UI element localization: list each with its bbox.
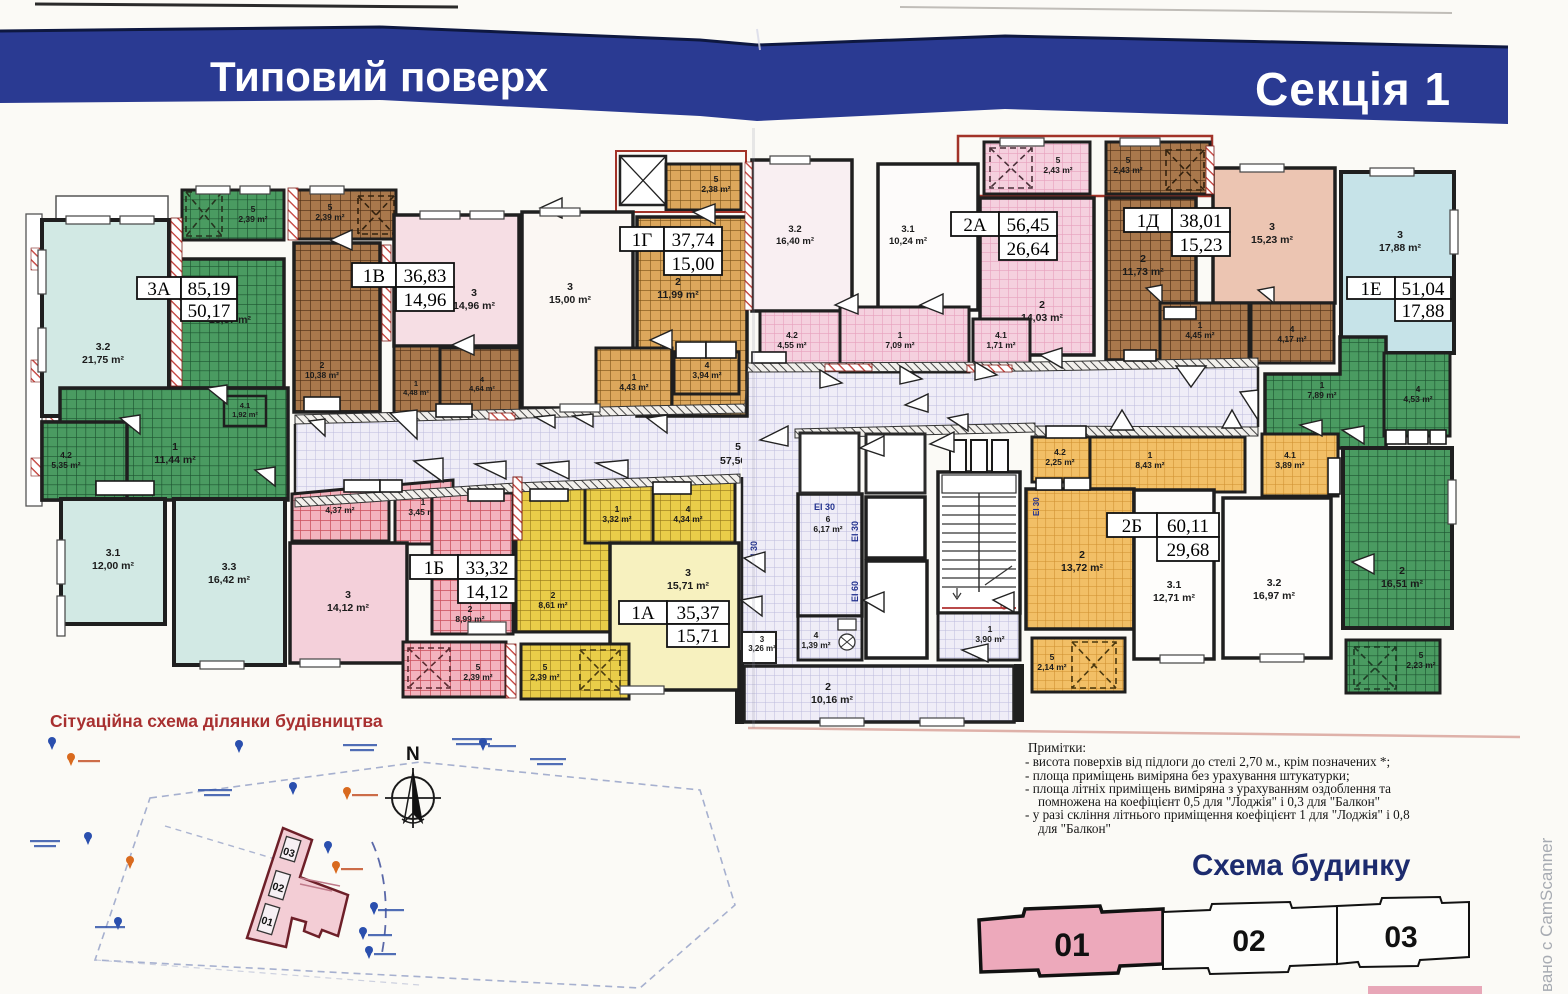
svg-text:14,96: 14,96 bbox=[404, 290, 447, 311]
svg-text:3А: 3А bbox=[147, 279, 171, 300]
svg-text:вано с CamScanner: вано с CamScanner bbox=[1537, 837, 1556, 992]
svg-text:1А: 1А bbox=[631, 603, 655, 624]
svg-text:15,71: 15,71 bbox=[677, 626, 720, 647]
svg-text:36,83: 36,83 bbox=[404, 266, 447, 287]
svg-text:15,23: 15,23 bbox=[1180, 235, 1223, 256]
svg-text:26,64: 26,64 bbox=[1007, 239, 1050, 260]
svg-text:2Б: 2Б bbox=[1122, 516, 1142, 537]
svg-text:для "Балкон": для "Балкон" bbox=[1038, 821, 1111, 836]
svg-text:01: 01 bbox=[1054, 927, 1090, 963]
svg-text:51,04: 51,04 bbox=[1402, 279, 1445, 300]
svg-text:EI 30: EI 30 bbox=[814, 502, 835, 512]
svg-text:85,19: 85,19 bbox=[188, 279, 231, 300]
svg-text:Типовий поверх: Типовий поверх bbox=[210, 53, 549, 100]
svg-text:- у разі скління літнього прим: - у разі скління літнього приміщення кое… bbox=[1025, 807, 1410, 822]
svg-text:Секція 1: Секція 1 bbox=[1255, 63, 1451, 115]
svg-text:EI 30: EI 30 bbox=[850, 521, 860, 542]
svg-text:56,45: 56,45 bbox=[1007, 215, 1050, 236]
svg-text:15,00: 15,00 bbox=[672, 254, 715, 275]
svg-text:14,12: 14,12 bbox=[466, 582, 509, 603]
svg-text:- висота поверхів від підлоги: - висота поверхів від підлоги до стелі 2… bbox=[1025, 754, 1390, 769]
svg-text:38,01: 38,01 bbox=[1180, 211, 1223, 232]
svg-text:33,32: 33,32 bbox=[466, 558, 509, 579]
svg-text:EI 30: EI 30 bbox=[1032, 497, 1041, 516]
svg-text:29,68: 29,68 bbox=[1167, 540, 1210, 561]
svg-text:1Г: 1Г bbox=[632, 230, 653, 251]
svg-text:N: N bbox=[406, 744, 420, 765]
svg-text:50,17: 50,17 bbox=[188, 301, 231, 322]
svg-text:Примітки:: Примітки: bbox=[1028, 740, 1086, 755]
svg-text:37,74: 37,74 bbox=[672, 230, 715, 251]
svg-text:60,11: 60,11 bbox=[1167, 516, 1209, 537]
svg-text:Сітуаційна схема ділянки будів: Сітуаційна схема ділянки будівництва bbox=[50, 711, 383, 731]
svg-text:1Е: 1Е bbox=[1360, 279, 1381, 300]
svg-text:03: 03 bbox=[1384, 921, 1417, 954]
svg-text:1Б: 1Б bbox=[424, 558, 444, 579]
svg-text:2А: 2А bbox=[963, 215, 987, 236]
svg-text:1В: 1В bbox=[363, 266, 385, 287]
svg-text:1Д: 1Д bbox=[1137, 211, 1160, 232]
svg-text:35,37: 35,37 bbox=[677, 603, 720, 624]
svg-text:Схема будинку: Схема будинку bbox=[1192, 849, 1411, 882]
svg-text:02: 02 bbox=[1232, 925, 1265, 958]
svg-text:17,88: 17,88 bbox=[1402, 301, 1445, 322]
svg-text:EI 60: EI 60 bbox=[850, 581, 860, 602]
